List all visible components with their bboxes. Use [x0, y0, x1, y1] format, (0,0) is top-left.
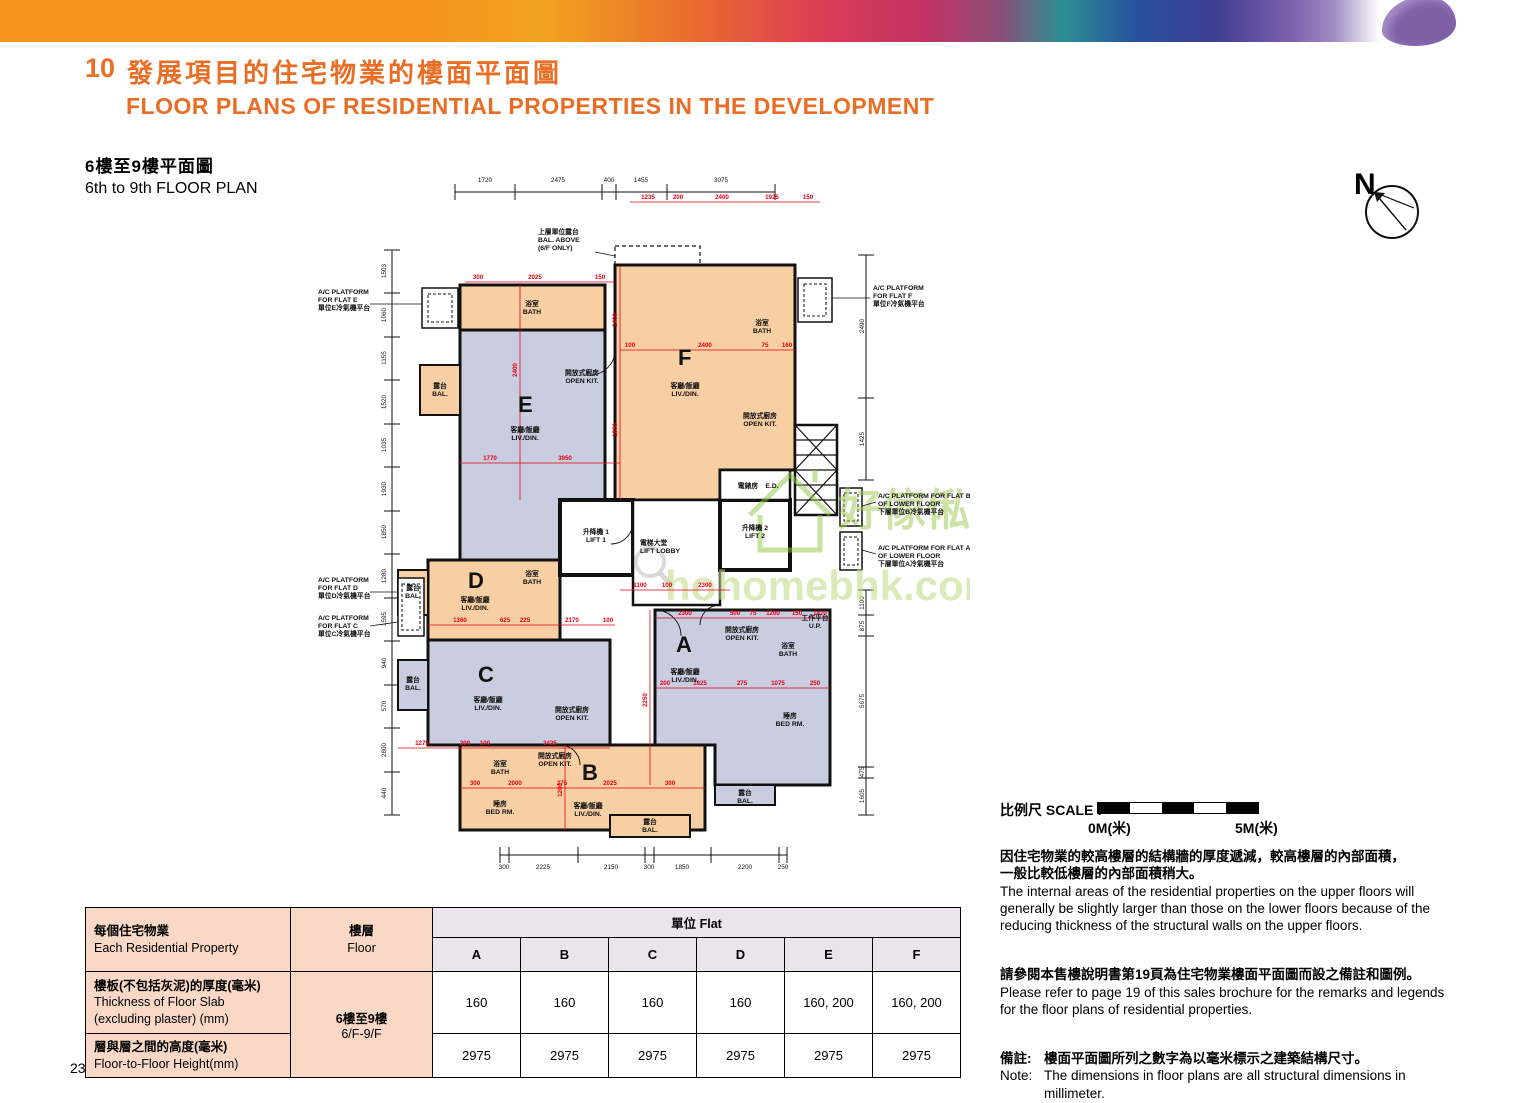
- table-row-slab: 樓板(不包括灰泥)的厚度(毫米) Thickness of Floor Slab…: [86, 972, 961, 1034]
- red-dim: 150: [803, 194, 814, 201]
- height-e: 2975: [785, 1034, 873, 1078]
- dim: 1280: [381, 568, 388, 583]
- floorplan-subtitle-en: 6th to 9th FLOOR PLAN: [85, 180, 258, 198]
- ed-label: 電錶房: [738, 481, 759, 490]
- room-label: BED RM.: [776, 721, 805, 728]
- ac-label-d: A/C PLATFORM: [318, 577, 369, 584]
- ac-label-c: A/C PLATFORM: [318, 615, 369, 622]
- note-para2-zh: 請參閱本售樓說明書第19頁為住宅物業樓面平面圖而設之備註和圖例。: [1000, 966, 1445, 983]
- dim: 570: [381, 700, 388, 711]
- red-dim: 2025: [603, 780, 617, 787]
- lift-1-label: 升降機 1: [583, 527, 609, 536]
- slab-b: 160: [521, 972, 609, 1034]
- dim: 2200: [738, 864, 753, 870]
- room-label: BAL.: [432, 391, 448, 398]
- room-label: 浴室: [781, 641, 795, 650]
- dim: 250: [778, 864, 789, 870]
- dim: 1605: [859, 788, 866, 803]
- height-d: 2975: [697, 1034, 785, 1078]
- col-header-flat: 單位 Flat: [433, 908, 961, 938]
- ac-label-c: FOR FLAT C: [318, 623, 358, 630]
- dim: 1455: [634, 177, 649, 184]
- red-dim: 1770: [483, 455, 497, 462]
- room-label: 睡房: [493, 799, 507, 808]
- red-dim: 100: [662, 582, 673, 589]
- flat-col-b: B: [521, 938, 609, 972]
- room-label: LIV./DIN.: [671, 677, 698, 684]
- dim: 2150: [604, 864, 619, 870]
- room-label: 睡房: [783, 711, 797, 720]
- room-label: 客廳/飯廳: [669, 667, 699, 676]
- red-dim: 2400: [698, 342, 712, 349]
- room-label: 露台: [406, 583, 420, 592]
- room-label: BAL.: [737, 798, 753, 805]
- scale-end: 5M(米): [1235, 818, 1278, 838]
- room-label: OPEN KIT.: [743, 421, 776, 428]
- height-a: 2975: [433, 1034, 521, 1078]
- dim: 475: [859, 766, 866, 777]
- red-dim: 1850: [612, 423, 619, 437]
- balcony-above-note: (6/F ONLY): [538, 245, 573, 252]
- ac-label-b: 下層單位B冷氣機平台: [878, 507, 944, 516]
- watercolor-banner: [0, 0, 1516, 42]
- ac-label-b: OF LOWER FLOOR: [878, 501, 940, 508]
- dim: 940: [381, 657, 388, 668]
- red-dim: 1100: [633, 582, 647, 589]
- ac-label-f: 單位F冷氣機平台: [873, 299, 925, 308]
- red-dim: 2300: [678, 610, 692, 617]
- red-dim: 1275: [415, 740, 429, 747]
- room-label: 露台: [738, 788, 752, 797]
- room-label: 浴室: [525, 569, 539, 578]
- red-dim: 2250: [642, 693, 649, 707]
- room-label: OPEN KIT.: [565, 378, 598, 385]
- dim: 1520: [381, 394, 388, 409]
- flat-col-d: D: [697, 938, 785, 972]
- ac-label-f: FOR FLAT F: [873, 293, 912, 300]
- room-label: BAL.: [405, 685, 421, 692]
- scale-start: 0M(米): [1088, 818, 1131, 838]
- room-label: 客廳/飯廳: [459, 595, 489, 604]
- lift-lobby-label: LIFT LOBBY: [640, 548, 680, 555]
- room-label: 露台: [643, 817, 657, 826]
- red-dim: 3950: [558, 455, 572, 462]
- flat-letter-f: F: [678, 345, 691, 370]
- dim: 300: [644, 864, 655, 870]
- ac-label-c: 單位C冷氣機平台: [318, 629, 371, 638]
- compass-circle: [1366, 186, 1418, 238]
- dim: 1425: [859, 431, 866, 446]
- lift-2-label: LIFT 2: [745, 533, 765, 540]
- red-dim: 300: [473, 274, 484, 281]
- room-label: LIV./DIN.: [474, 705, 501, 712]
- dim: 1850: [675, 864, 690, 870]
- red-dim: 100: [625, 342, 636, 349]
- room-label: 客廳/飯廳: [472, 695, 502, 704]
- dim: 1060: [381, 307, 388, 322]
- col-header-floor: 樓層Floor: [291, 908, 433, 972]
- red-dim: 1360: [453, 617, 467, 624]
- flat-c: [428, 640, 610, 745]
- room-label: BAL.: [405, 593, 421, 600]
- flat-col-e: E: [785, 938, 873, 972]
- room-label: BED RM.: [486, 809, 515, 816]
- room-label: 工作平台: [801, 613, 828, 622]
- ac-label-a: A/C PLATFORM FOR FLAT A: [878, 545, 970, 552]
- red-dim: 100: [480, 740, 491, 747]
- room-label: BATH: [753, 328, 771, 335]
- slab-d: 160: [697, 972, 785, 1034]
- dim: 1503: [381, 263, 388, 278]
- row-label-height: 層與層之間的高度(毫米) Floor-to-Floor Height(mm): [86, 1034, 291, 1078]
- north-compass: N: [1348, 164, 1428, 248]
- room-label: BATH: [491, 769, 509, 776]
- red-dim: 1235: [641, 194, 655, 201]
- flat-letter-a: A: [676, 632, 692, 657]
- notes-block: 因住宅物業的較高樓層的結構牆的厚度遞減，較高樓層的內部面積，一般比較低樓層的內部…: [1000, 848, 1445, 1102]
- lift-lobby-label: 電梯大堂: [640, 538, 667, 547]
- ac-label-e: A/C PLATFORM: [318, 289, 369, 296]
- note-para1-zh: 因住宅物業的較高樓層的結構牆的厚度遞減，較高樓層的內部面積，一般比較低樓層的內部…: [1000, 848, 1445, 883]
- room-label: 開放式廚房: [565, 368, 599, 377]
- room-label: 浴室: [525, 299, 539, 308]
- red-dim: 300: [665, 780, 676, 787]
- room-label: 開放式廚房: [538, 751, 572, 760]
- floor-range-cell: 6樓至9樓6/F-9/F: [291, 972, 433, 1078]
- room-label: LIV./DIN.: [671, 391, 698, 398]
- balcony-above-note: BAL. ABOVE: [538, 237, 580, 244]
- red-dim: 2170: [565, 617, 579, 624]
- bottom-dim-chain: [500, 847, 787, 863]
- red-dim: 3425: [543, 740, 557, 747]
- red-dim: 1200: [557, 783, 564, 797]
- dim: 1850: [381, 524, 388, 539]
- height-f: 2975: [873, 1034, 961, 1078]
- room-label: 客廳/飯廳: [509, 425, 539, 434]
- dim: 1035: [381, 437, 388, 452]
- dim: 3075: [714, 177, 729, 184]
- ac-label-e: 單位E冷氣機平台: [318, 303, 370, 312]
- red-dim: 160: [782, 342, 793, 349]
- red-dim: 225: [520, 617, 531, 624]
- note-remark-zh: 備註: 樓面平面圖所列之數字為以毫米標示之建築結構尺寸。: [1000, 1050, 1445, 1067]
- red-dim: 200: [660, 680, 671, 687]
- red-dim: 500: [730, 610, 741, 617]
- red-dim: 2025: [528, 274, 542, 281]
- dim: 2225: [536, 864, 551, 870]
- room-label: 開放式廚房: [725, 625, 759, 634]
- ac-label-d: 單位D冷氣機平台: [318, 591, 371, 600]
- lift-1-label: LIFT 1: [586, 537, 606, 544]
- red-dim: 2400: [612, 313, 619, 327]
- flat-f: [615, 265, 795, 500]
- room-label: BAL.: [642, 827, 658, 834]
- red-dim: 1200: [766, 610, 780, 617]
- dim: 440: [381, 787, 388, 798]
- slab-e: 160, 200: [785, 972, 873, 1034]
- flat-letter-c: C: [478, 662, 494, 687]
- page-title-en: FLOOR PLANS OF RESIDENTIAL PROPERTIES IN…: [126, 93, 934, 120]
- height-c: 2975: [609, 1034, 697, 1078]
- floorplan-subtitle-zh: 6樓至9樓平面圖: [85, 152, 214, 177]
- room-label: LIV./DIN.: [511, 435, 538, 442]
- red-dim: 1075: [771, 680, 785, 687]
- room-label: 浴室: [493, 759, 507, 768]
- flat-e-balcony: [420, 365, 460, 415]
- dim: 2490: [859, 318, 866, 333]
- dim: 2800: [381, 742, 388, 757]
- slab-a: 160: [433, 972, 521, 1034]
- red-dim: 2400: [715, 194, 729, 201]
- section-number: 10: [85, 53, 115, 84]
- room-label: 開放式廚房: [743, 411, 777, 420]
- red-dim: 275: [737, 680, 748, 687]
- room-label: 露台: [406, 675, 420, 684]
- floor-data-table: 每個住宅物業Each Residential Property 樓層Floor …: [85, 907, 961, 1078]
- flat-letter-b: B: [582, 760, 598, 785]
- red-dim: 200: [460, 740, 471, 747]
- room-label: U.P.: [809, 623, 821, 630]
- red-dim: 150: [595, 274, 606, 281]
- balcony-above-note: 上層單位露台: [538, 227, 579, 236]
- page-number: 23: [70, 1060, 86, 1076]
- red-dim: 1925: [765, 194, 779, 201]
- dim: 300: [499, 864, 510, 870]
- red-dim: 625: [500, 617, 511, 624]
- scale-bar: [1097, 802, 1259, 814]
- col-header-property: 每個住宅物業Each Residential Property: [86, 908, 291, 972]
- dim: 1930: [381, 481, 388, 496]
- room-label: OPEN KIT.: [725, 635, 758, 642]
- flat-col-c: C: [609, 938, 697, 972]
- room-label: BATH: [779, 651, 797, 658]
- note-para2-en: Please refer to page 19 of this sales br…: [1000, 984, 1445, 1019]
- red-dim: 75: [750, 610, 757, 617]
- brochure-page: { "header": { "section_number": "10", "t…: [0, 0, 1516, 1103]
- slab-c: 160: [609, 972, 697, 1034]
- room-label: BATH: [523, 309, 541, 316]
- height-b: 2975: [521, 1034, 609, 1078]
- ac-label-b: A/C PLATFORM FOR FLAT B: [878, 493, 970, 500]
- red-dim: 2400: [512, 363, 519, 377]
- ed-label: E.D.: [765, 483, 778, 490]
- slab-f: 160, 200: [873, 972, 961, 1034]
- red-dim: 300: [470, 780, 481, 787]
- room-label: LIV./DIN.: [461, 605, 488, 612]
- red-dim: 2300: [698, 582, 712, 589]
- room-label: 客廳/飯廳: [669, 381, 699, 390]
- lift-2-label: 升降機 2: [742, 523, 768, 532]
- room-label: BATH: [523, 579, 541, 586]
- ac-label-a: OF LOWER FLOOR: [878, 553, 940, 560]
- dim: 1155: [381, 351, 388, 365]
- flat-letter-e: E: [518, 392, 533, 417]
- room-label: LIV./DIN.: [574, 811, 601, 818]
- red-dim: 100: [603, 617, 614, 624]
- flat-col-f: F: [873, 938, 961, 972]
- ac-label-d: FOR FLAT D: [318, 585, 358, 592]
- flat-col-a: A: [433, 938, 521, 972]
- row-label-slab: 樓板(不包括灰泥)的厚度(毫米) Thickness of Floor Slab…: [86, 972, 291, 1034]
- flat-d: [428, 560, 560, 640]
- flat-letter-d: D: [468, 568, 484, 593]
- page-title-zh: 發展項目的住宅物業的樓面平面圖: [127, 53, 562, 90]
- room-label: 客廳/飯廳: [572, 801, 602, 810]
- dim: 1720: [478, 177, 493, 184]
- room-label: 露台: [433, 381, 447, 390]
- room-label: OPEN KIT.: [538, 761, 571, 768]
- scale-label: 比例尺 SCALE :: [1000, 800, 1102, 820]
- table-row-height: 層與層之間的高度(毫米) Floor-to-Floor Height(mm) 2…: [86, 1034, 961, 1078]
- ac-label-a: 下層單位A冷氣機平台: [878, 559, 944, 568]
- floor-plan: 1720 2475 400 1455 3075 300 2225 2150 30…: [310, 170, 970, 870]
- room-label: 浴室: [755, 318, 769, 327]
- note-remark-en: Note: The dimensions in floor plans are …: [1000, 1067, 1445, 1102]
- room-label: OPEN KIT.: [555, 715, 588, 722]
- dim: 875: [859, 620, 866, 631]
- room-label: 開放式廚房: [555, 705, 589, 714]
- red-dim: 200: [673, 194, 684, 201]
- red-dim: 2000: [508, 780, 522, 787]
- dim: 400: [604, 177, 615, 184]
- dim: 5675: [859, 693, 866, 708]
- dim: 2475: [551, 177, 566, 184]
- ac-label-e: FOR FLAT E: [318, 297, 358, 304]
- red-dim: 75: [762, 342, 769, 349]
- note-para1-en: The internal areas of the residential pr…: [1000, 883, 1445, 935]
- red-dim: 250: [810, 680, 821, 687]
- ac-label-f: A/C PLATFORM: [873, 285, 924, 292]
